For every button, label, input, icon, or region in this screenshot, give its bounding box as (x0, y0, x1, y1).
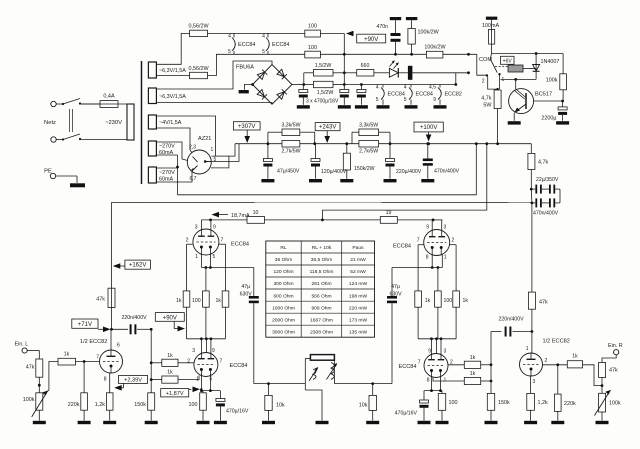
svg-text:220n/400V: 220n/400V (498, 317, 524, 323)
svg-text:3: 3 (444, 349, 447, 355)
svg-text:21 mW: 21 mW (350, 257, 366, 263)
svg-text:1k: 1k (470, 355, 476, 361)
svg-text:BC517: BC517 (535, 92, 552, 98)
svg-text:1667 Ohm: 1667 Ohm (310, 317, 333, 323)
svg-text:173 mW: 173 mW (349, 317, 368, 323)
svg-text:ECC84: ECC84 (399, 364, 417, 370)
svg-text:PE: PE (44, 169, 52, 175)
svg-text:6: 6 (210, 377, 213, 383)
svg-text:4: 4 (404, 85, 407, 91)
svg-text:100k/2W: 100k/2W (424, 45, 446, 51)
svg-text:100: 100 (444, 298, 453, 304)
svg-text:36 Ohm: 36 Ohm (275, 257, 292, 263)
svg-text:47µ: 47µ (391, 284, 400, 290)
svg-text:100: 100 (192, 298, 201, 304)
svg-text:2000 Ohm: 2000 Ohm (272, 317, 295, 323)
svg-text:5W: 5W (483, 103, 492, 109)
svg-text:3,3k/5W: 3,3k/5W (359, 123, 378, 129)
svg-text:19: 19 (386, 210, 392, 216)
svg-text:~270V: ~270V (159, 170, 175, 176)
svg-text:4,7k: 4,7k (481, 96, 491, 102)
svg-text:220n/400V: 220n/400V (121, 315, 147, 321)
svg-text:5: 5 (213, 254, 216, 260)
svg-text:135 mW: 135 mW (349, 329, 368, 335)
svg-text:47k: 47k (539, 300, 548, 306)
svg-text:~270V: ~270V (159, 143, 175, 149)
svg-text:124 mW: 124 mW (349, 281, 368, 287)
svg-text:FBU6A: FBU6A (236, 65, 254, 71)
svg-text:7: 7 (417, 238, 420, 244)
svg-text:35,5 Ohm: 35,5 Ohm (311, 257, 332, 263)
svg-text:4: 4 (376, 85, 379, 91)
svg-text:100k: 100k (23, 397, 35, 403)
svg-text:1k: 1k (572, 353, 578, 359)
svg-text:0,56/2W: 0,56/2W (188, 24, 209, 30)
svg-text:10k: 10k (276, 403, 285, 409)
svg-text:3: 3 (195, 225, 198, 231)
svg-text:7: 7 (221, 238, 224, 244)
svg-text:198 mW: 198 mW (349, 293, 368, 299)
svg-text:4,5: 4,5 (429, 85, 436, 91)
svg-text:~4V/1,5A: ~4V/1,5A (159, 120, 182, 126)
svg-text:1: 1 (444, 378, 447, 384)
svg-text:3,3k/5W: 3,3k/5W (281, 123, 300, 129)
svg-text:1,2k: 1,2k (538, 400, 548, 406)
svg-text:3: 3 (192, 348, 195, 354)
svg-text:470n/400V: 470n/400V (533, 211, 559, 217)
svg-text:220 mW: 220 mW (349, 305, 368, 311)
svg-text:150k: 150k (498, 400, 510, 406)
svg-text:ECC84: ECC84 (272, 42, 289, 48)
svg-text:2: 2 (482, 79, 485, 85)
svg-text:120µ/400V: 120µ/400V (321, 169, 347, 175)
svg-text:100k: 100k (546, 78, 558, 84)
svg-text:2308 Ohm: 2308 Ohm (310, 329, 333, 335)
svg-text:8: 8 (427, 378, 430, 384)
svg-text:100k/2W: 100k/2W (418, 30, 440, 36)
svg-text:1N4007: 1N4007 (541, 59, 560, 65)
svg-text:3: 3 (444, 225, 447, 231)
svg-text:2: 2 (545, 358, 548, 364)
svg-text:1: 1 (502, 77, 505, 83)
svg-text:630V: 630V (240, 291, 253, 297)
svg-text:1/2 ECC82: 1/2 ECC82 (80, 339, 107, 345)
svg-text:+1,87V: +1,87V (166, 391, 184, 397)
svg-text:AZ21: AZ21 (198, 136, 211, 142)
svg-text:1k: 1k (463, 298, 469, 304)
svg-text:5: 5 (214, 157, 217, 163)
svg-text:470n/400V: 470n/400V (434, 169, 460, 175)
svg-text:5: 5 (404, 97, 407, 103)
svg-text:0,4A: 0,4A (103, 94, 115, 100)
svg-text:8: 8 (104, 377, 107, 383)
svg-text:100: 100 (308, 45, 317, 51)
svg-text:7: 7 (220, 359, 223, 365)
svg-text:1k: 1k (176, 298, 182, 304)
svg-text:470n: 470n (376, 24, 388, 30)
svg-text:4: 4 (228, 34, 231, 40)
svg-text:47µ/450V: 47µ/450V (277, 169, 300, 175)
svg-text:150k: 150k (134, 402, 146, 408)
svg-text:+71V: +71V (78, 322, 92, 328)
svg-text:100k: 100k (609, 401, 621, 407)
svg-text:5: 5 (262, 49, 265, 55)
svg-text:+162V: +162V (129, 263, 147, 269)
svg-text:100: 100 (189, 402, 198, 408)
svg-text:9: 9 (213, 225, 216, 231)
svg-text:52 mW: 52 mW (350, 269, 366, 275)
svg-text:100: 100 (449, 400, 458, 406)
svg-text:Ein. L: Ein. L (15, 342, 29, 348)
svg-text:6: 6 (117, 343, 120, 349)
svg-text:1: 1 (444, 254, 447, 260)
svg-text:9: 9 (433, 97, 436, 103)
svg-text:1,5/2W: 1,5/2W (315, 63, 332, 69)
svg-text:100: 100 (308, 24, 317, 30)
svg-text:Ein. R: Ein. R (608, 343, 623, 349)
svg-text:4: 4 (262, 34, 265, 40)
svg-text:+100V: +100V (420, 125, 438, 131)
svg-text:10k: 10k (359, 403, 368, 409)
svg-text:566 Ohm: 566 Ohm (311, 293, 331, 299)
svg-text:150k/2W: 150k/2W (354, 166, 375, 172)
svg-text:+243V: +243V (319, 125, 337, 131)
svg-text:120 Ohm: 120 Ohm (273, 269, 293, 275)
svg-text:1k: 1k (167, 370, 173, 376)
svg-text:ECC84: ECC84 (231, 242, 249, 248)
svg-text:22µ/350V: 22µ/350V (536, 177, 559, 183)
svg-text:ECC84: ECC84 (388, 92, 405, 98)
svg-text:1: 1 (211, 147, 214, 153)
svg-text:9: 9 (212, 348, 215, 354)
svg-text:+307V: +307V (238, 124, 256, 130)
svg-text:118,5 Ohm: 118,5 Ohm (310, 269, 334, 275)
svg-text:Netz: Netz (44, 120, 56, 126)
svg-text:3 x 4700µ/16V: 3 x 4700µ/16V (306, 99, 339, 105)
svg-text:ECC82: ECC82 (445, 92, 462, 98)
svg-text:2: 2 (452, 238, 455, 244)
svg-text:220µ/400V: 220µ/400V (396, 169, 422, 175)
svg-text:660: 660 (361, 63, 370, 69)
svg-text:600 Ohm: 600 Ohm (273, 293, 293, 299)
svg-text:+90V: +90V (163, 315, 177, 321)
svg-text:~6,3V/1,5A: ~6,3V/1,5A (159, 68, 186, 74)
svg-text:7: 7 (96, 355, 99, 361)
svg-text:100mA: 100mA (482, 23, 499, 29)
svg-text:2,7k/5W: 2,7k/5W (281, 149, 300, 155)
svg-text:7: 7 (418, 360, 421, 366)
svg-text:1k: 1k (425, 298, 431, 304)
svg-text:47k: 47k (26, 365, 35, 371)
svg-text:470µ/16V: 470µ/16V (226, 409, 249, 415)
svg-text:5: 5 (376, 97, 379, 103)
svg-text:0,56/2W: 0,56/2W (188, 66, 209, 72)
svg-text:1k: 1k (216, 298, 222, 304)
svg-text:470µ/16V: 470µ/16V (395, 411, 418, 417)
svg-text:ECC84: ECC84 (238, 42, 255, 48)
svg-text:1k: 1k (64, 352, 70, 358)
svg-text:ECC84: ECC84 (416, 92, 433, 98)
svg-text:4,7k: 4,7k (538, 160, 548, 166)
svg-text:2200µ: 2200µ (541, 116, 556, 122)
svg-text:47k: 47k (609, 368, 618, 374)
svg-text:2,7k/5W: 2,7k/5W (359, 149, 378, 155)
svg-text:+2,39V: +2,39V (124, 378, 142, 384)
svg-text:10: 10 (253, 210, 259, 216)
svg-text:9: 9 (426, 225, 429, 231)
svg-text:2: 2 (186, 238, 189, 244)
svg-text:630V: 630V (389, 291, 402, 297)
svg-text:5: 5 (228, 49, 231, 55)
svg-text:~6,3V/1,5A: ~6,3V/1,5A (159, 94, 186, 100)
svg-text:+6V: +6V (503, 58, 513, 64)
svg-text:1,5/2W: 1,5/2W (317, 90, 334, 96)
svg-text:3000 Ohm: 3000 Ohm (272, 329, 295, 335)
svg-text:909 Ohm: 909 Ohm (311, 305, 331, 311)
svg-text:Paus: Paus (352, 245, 364, 251)
svg-text:1: 1 (195, 254, 198, 260)
svg-text:291 Ohm: 291 Ohm (311, 281, 331, 287)
svg-text:ECC84: ECC84 (393, 244, 411, 250)
svg-text:+90V: +90V (364, 37, 378, 43)
svg-text:6,7: 6,7 (190, 176, 197, 182)
svg-text:1,2k: 1,2k (95, 402, 105, 408)
svg-text:9: 9 (428, 349, 431, 355)
svg-text:1k: 1k (167, 353, 173, 359)
svg-text:ECC84: ECC84 (230, 363, 248, 369)
svg-text:RL + 10k: RL + 10k (312, 245, 332, 251)
svg-text:220k: 220k (564, 401, 576, 407)
svg-text:300 Ohm: 300 Ohm (273, 281, 293, 287)
svg-text:1000 Ohm: 1000 Ohm (272, 305, 295, 311)
svg-text:1/2 ECC82: 1/2 ECC82 (543, 339, 570, 345)
svg-text:8: 8 (426, 254, 429, 260)
svg-text:220k: 220k (68, 402, 80, 408)
svg-text:RL: RL (280, 245, 287, 251)
svg-text:1: 1 (196, 377, 199, 383)
svg-text:47k: 47k (96, 297, 105, 303)
svg-text:47µ: 47µ (241, 284, 250, 290)
svg-text:3: 3 (533, 379, 536, 385)
svg-text:1k: 1k (470, 371, 476, 377)
svg-text:1: 1 (526, 346, 529, 352)
svg-text:~230V: ~230V (105, 120, 122, 126)
svg-text:2: 2 (187, 359, 190, 365)
